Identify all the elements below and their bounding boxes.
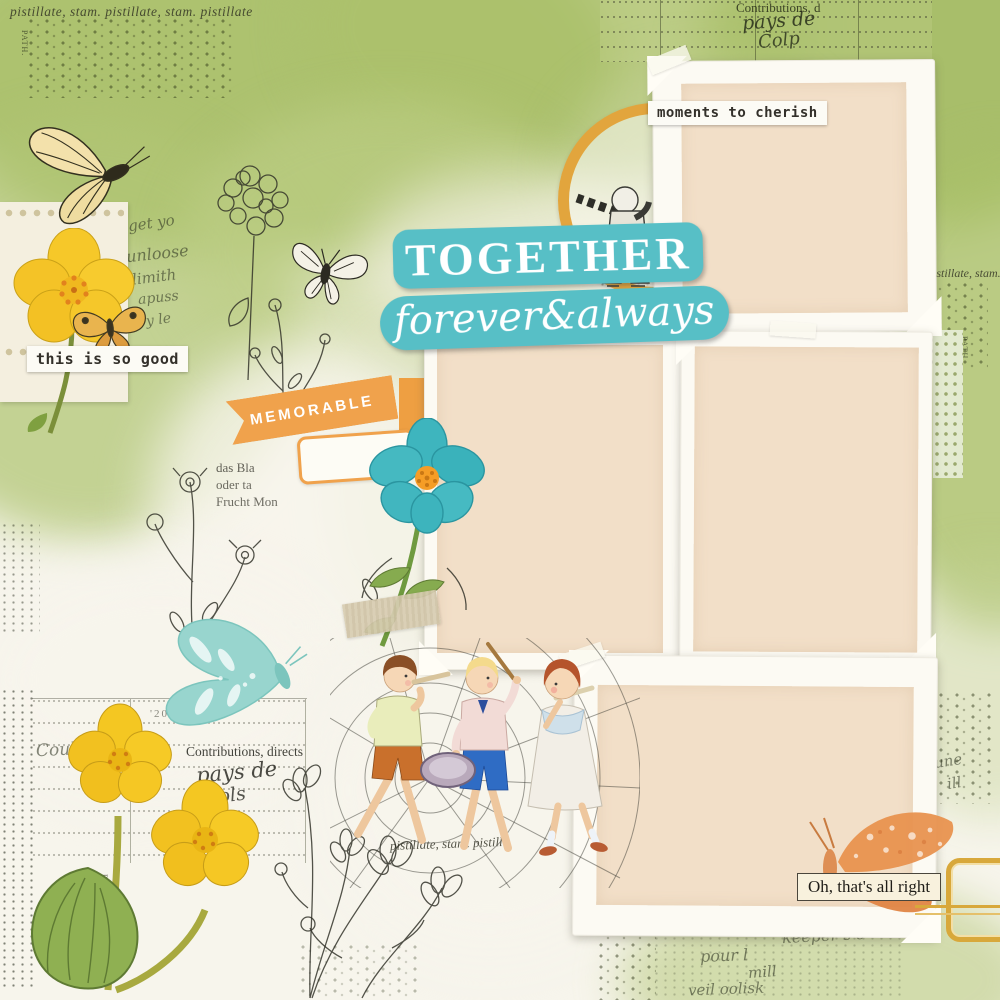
pistillate-text-top: pistillate, stam. pistillate, stam. pist… <box>10 4 253 20</box>
photo-area <box>693 346 919 652</box>
gold-ticket-corner <box>946 858 1000 942</box>
butterfly-cream <box>18 99 197 236</box>
script-bottom-4: veil oolisk <box>688 979 765 1000</box>
script-colp-top: Colp <box>757 28 801 53</box>
dot-grid <box>938 692 992 804</box>
photo-frame-middle-right <box>679 330 933 667</box>
tape-piece <box>770 320 817 338</box>
script-right-2: ill <box>946 773 963 793</box>
title-forever-always-text: forever&always <box>393 287 715 344</box>
butterfly-moth <box>275 221 378 320</box>
pistillate-text-right: pistillate, stam. <box>927 266 1000 281</box>
children-band <box>330 638 640 888</box>
teal-butterfly-svg <box>128 602 321 740</box>
moth-svg <box>275 221 378 320</box>
script-bottom-2: pour l <box>700 945 749 966</box>
ledger-line <box>660 0 661 62</box>
label-oh-thats-all-right: Oh, that's all right <box>797 873 941 901</box>
dot-grid <box>28 18 233 98</box>
gold-stripes <box>915 905 1000 915</box>
green-dotted-strip <box>933 330 963 478</box>
path-vertical-label: PATH. <box>20 30 29 56</box>
label-moments-to-cherish: moments to cherish <box>648 101 827 125</box>
cream-butterfly-svg <box>18 99 197 236</box>
title-together-sticker: TOGETHER <box>392 222 704 289</box>
ink-speckle <box>0 522 40 632</box>
title-together-text: TOGETHER <box>404 227 692 285</box>
butterfly-teal <box>128 602 321 740</box>
label-this-is-so-good: this is so good <box>27 346 188 372</box>
ledger-line <box>858 0 859 62</box>
children-band-svg <box>330 638 640 888</box>
scrapbook-page: pistillate, stam. pistillate, stam. pist… <box>0 0 1000 1000</box>
